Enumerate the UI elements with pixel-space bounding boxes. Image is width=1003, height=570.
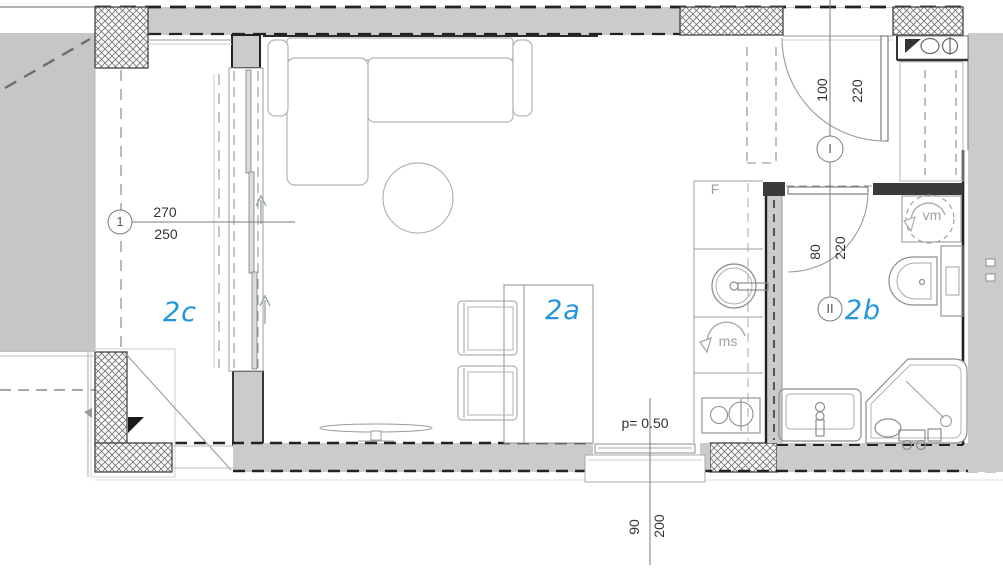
washbasin <box>779 389 861 441</box>
washing-machine-label: vm <box>914 207 950 223</box>
toilet <box>889 257 937 305</box>
tv-console <box>320 424 432 441</box>
dim-entrance-door-height: 220 <box>849 69 865 113</box>
room-label-living: 2a <box>533 295 593 326</box>
bathroom-door <box>788 187 868 272</box>
dim-loggia-window-width: 270 <box>140 204 190 220</box>
dim-bottom-window-height: 200 <box>651 504 667 548</box>
kitchen-unit-label: ms <box>711 333 745 349</box>
kitchen-sink <box>712 264 768 308</box>
bathroom-cabinet <box>941 246 963 316</box>
parapet-height-label: p= 0.50 <box>610 415 680 431</box>
entrance-door <box>782 36 888 141</box>
dim-bottom-window-width: 90 <box>626 505 642 549</box>
marker-loggia-window: 1 <box>105 214 135 229</box>
top-wall <box>95 7 963 40</box>
round-table <box>383 163 453 233</box>
marker-entrance-door: I <box>815 141 845 156</box>
dim-entrance-door-width: 100 <box>814 68 830 112</box>
shower <box>866 359 967 450</box>
dim-loggia-window-height: 250 <box>141 226 191 242</box>
room-label-loggia: 2c <box>150 297 210 328</box>
dim-bathroom-door-width: 80 <box>807 230 823 274</box>
kitchen-counter <box>694 181 763 443</box>
bottom-window <box>585 444 705 482</box>
sofa <box>268 38 532 185</box>
hall-closet <box>900 62 963 181</box>
entry-direction-triangle-icon <box>128 417 144 433</box>
left-balcony-area <box>0 7 95 390</box>
marker-bathroom-door: II <box>815 301 845 316</box>
cooktop <box>702 398 760 433</box>
overhead-dashed-lines <box>747 47 776 163</box>
floor-plan: 2c 2a 2b 270 250 100 220 80 220 90 200 p… <box>0 0 1003 570</box>
fridge-label: F <box>705 181 725 197</box>
dim-bathroom-door-height: 220 <box>832 226 848 270</box>
